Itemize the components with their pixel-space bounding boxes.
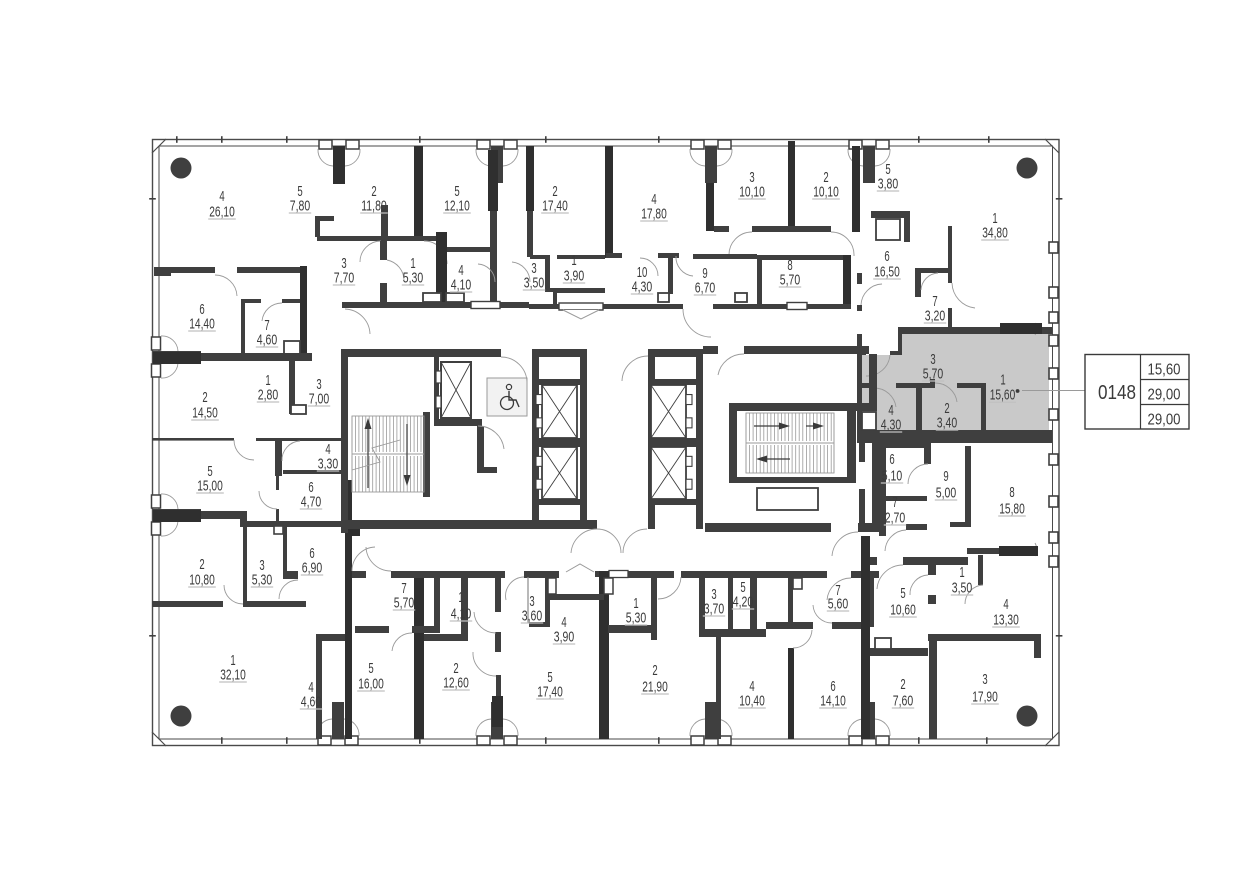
svg-text:5,70: 5,70 xyxy=(394,595,414,612)
svg-text:3,20: 3,20 xyxy=(925,308,945,325)
svg-text:3,80: 3,80 xyxy=(878,176,898,193)
svg-text:16,50: 16,50 xyxy=(874,264,900,281)
svg-text:5,60: 5,60 xyxy=(828,596,848,613)
svg-text:6,90: 6,90 xyxy=(302,560,322,577)
svg-text:16,00: 16,00 xyxy=(358,676,384,693)
svg-text:15,00: 15,00 xyxy=(197,478,223,495)
svg-text:9: 9 xyxy=(943,468,948,485)
svg-text:10,80: 10,80 xyxy=(189,572,215,589)
svg-text:1: 1 xyxy=(458,589,463,606)
svg-text:34,80: 34,80 xyxy=(982,225,1008,242)
svg-text:15,60: 15,60 xyxy=(990,387,1016,404)
svg-text:2,80: 2,80 xyxy=(258,387,278,404)
svg-text:3,50: 3,50 xyxy=(952,580,972,597)
svg-text:6,70: 6,70 xyxy=(695,280,715,297)
svg-text:2: 2 xyxy=(652,662,657,679)
svg-text:5,00: 5,00 xyxy=(936,485,956,502)
svg-text:29,00: 29,00 xyxy=(1148,412,1181,429)
svg-text:26,10: 26,10 xyxy=(209,204,235,221)
svg-text:7,70: 7,70 xyxy=(334,270,354,287)
svg-text:3,90: 3,90 xyxy=(554,629,574,646)
svg-text:3,70: 3,70 xyxy=(704,601,724,618)
svg-text:4,60: 4,60 xyxy=(301,694,321,711)
svg-text:2,70: 2,70 xyxy=(885,510,905,527)
svg-text:6: 6 xyxy=(884,248,889,265)
svg-text:14,50: 14,50 xyxy=(192,405,218,422)
svg-text:4,30: 4,30 xyxy=(881,417,901,434)
svg-text:5,70: 5,70 xyxy=(923,366,943,383)
svg-text:11,80: 11,80 xyxy=(361,198,387,215)
svg-text:4,20: 4,20 xyxy=(733,594,753,611)
svg-text:4,70: 4,70 xyxy=(301,494,321,511)
svg-text:12,60: 12,60 xyxy=(443,675,469,692)
svg-text:3: 3 xyxy=(982,671,987,688)
svg-text:4: 4 xyxy=(219,188,224,205)
svg-text:5,30: 5,30 xyxy=(252,572,272,589)
svg-text:4,10: 4,10 xyxy=(451,277,471,294)
svg-text:7,00: 7,00 xyxy=(309,391,329,408)
svg-text:4,60: 4,60 xyxy=(257,332,277,349)
svg-text:10,10: 10,10 xyxy=(813,184,839,201)
svg-text:2: 2 xyxy=(199,556,204,573)
svg-text:6: 6 xyxy=(889,451,894,468)
svg-text:21,90: 21,90 xyxy=(642,679,668,696)
svg-text:7: 7 xyxy=(892,494,897,511)
svg-text:1: 1 xyxy=(571,252,576,269)
svg-text:17,40: 17,40 xyxy=(542,198,568,215)
svg-text:14,40: 14,40 xyxy=(189,316,215,333)
svg-text:5,10: 5,10 xyxy=(882,468,902,485)
svg-text:4,30: 4,30 xyxy=(632,279,652,296)
svg-text:5: 5 xyxy=(900,585,905,602)
svg-text:2: 2 xyxy=(900,676,905,693)
svg-text:10,60: 10,60 xyxy=(890,602,916,619)
svg-text:5,30: 5,30 xyxy=(626,610,646,627)
svg-text:3,30: 3,30 xyxy=(318,456,338,473)
svg-text:2: 2 xyxy=(202,389,207,406)
svg-text:15,60: 15,60 xyxy=(1148,362,1181,379)
svg-text:7,80: 7,80 xyxy=(290,198,310,215)
svg-text:17,40: 17,40 xyxy=(537,684,563,701)
svg-text:10,10: 10,10 xyxy=(739,184,765,201)
svg-text:1: 1 xyxy=(959,564,964,581)
svg-text:15,80: 15,80 xyxy=(999,501,1025,518)
svg-text:12,10: 12,10 xyxy=(444,198,470,215)
svg-text:10,40: 10,40 xyxy=(739,693,765,710)
svg-text:3,40: 3,40 xyxy=(937,415,957,432)
svg-text:0148: 0148 xyxy=(1098,381,1136,404)
svg-text:5: 5 xyxy=(368,660,373,677)
svg-text:29,00: 29,00 xyxy=(1148,387,1181,404)
svg-text:17,80: 17,80 xyxy=(641,206,667,223)
svg-text:13,30: 13,30 xyxy=(993,612,1019,629)
svg-text:17,90: 17,90 xyxy=(972,689,998,706)
svg-text:7,60: 7,60 xyxy=(893,693,913,710)
svg-text:3,90: 3,90 xyxy=(564,268,584,285)
svg-text:3,50: 3,50 xyxy=(524,275,544,292)
svg-text:14,10: 14,10 xyxy=(820,693,846,710)
svg-text:5,70: 5,70 xyxy=(780,272,800,289)
svg-text:5,30: 5,30 xyxy=(403,270,423,287)
svg-text:4,10: 4,10 xyxy=(451,606,471,623)
svg-text:3,60: 3,60 xyxy=(522,608,542,625)
svg-text:4: 4 xyxy=(1003,596,1008,613)
svg-text:8: 8 xyxy=(1009,484,1014,501)
svg-text:32,10: 32,10 xyxy=(220,667,246,684)
